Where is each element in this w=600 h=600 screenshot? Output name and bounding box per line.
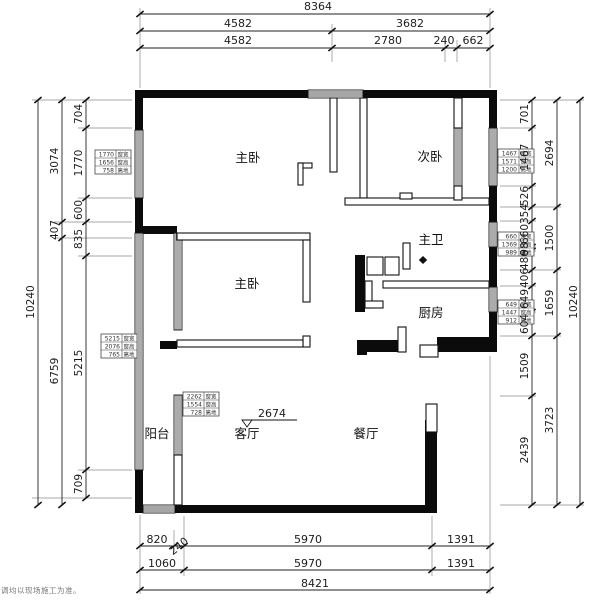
table-value: 2262 [187, 394, 202, 401]
wall-segment [160, 341, 177, 349]
annotation-value: 2674 [258, 407, 286, 420]
partition-or-door [365, 301, 383, 308]
dim-label-right-406: 406 [519, 268, 531, 288]
partition-or-door [174, 455, 182, 505]
table-value: 1770 [99, 152, 114, 159]
dim-label-left-5215: 5215 [73, 350, 85, 377]
partition-or-door [403, 243, 410, 269]
dim-label-right-486: 486 [519, 250, 531, 270]
wall-segment [135, 90, 308, 98]
window-icon [489, 128, 497, 186]
dim-label-right-1467: 1467 [519, 144, 531, 171]
table-label: 离地 [118, 167, 130, 175]
partition-or-door [398, 327, 406, 352]
dim-label-right-660: 660 [519, 224, 531, 244]
watermark-text: 调均以现场施工为准。 [1, 585, 81, 596]
window-icon [135, 130, 143, 198]
wall-segment [135, 505, 437, 513]
partition-or-door [400, 193, 412, 199]
dim-label-top-2780: 2780 [374, 34, 402, 47]
table-value: 728 [191, 410, 203, 417]
room-label: 客厅 [234, 426, 259, 441]
window-schedule-table: 1770窗宽1656窗高758离地 [95, 150, 131, 175]
wall-segment [437, 337, 497, 352]
dim-label-top-8364: 8364 [304, 0, 332, 13]
dim-label-right-3723: 3723 [544, 407, 556, 434]
dim-label-right-526: 526 [519, 186, 531, 206]
table-label: 窗宽 [124, 335, 136, 343]
table-label: 窗宽 [118, 151, 130, 159]
dim-label-bottom-5970: 5970 [294, 533, 322, 546]
partition-or-door [383, 281, 489, 288]
partition-or-door [426, 404, 437, 432]
partition-or-door [385, 257, 399, 275]
window-icon [454, 128, 462, 186]
wall-segment [489, 247, 497, 287]
room-label: 主卧 [234, 276, 259, 291]
dim-label-left-600: 600 [73, 200, 85, 220]
dim-label-left-10240: 10240 [25, 285, 37, 318]
room-label: 厨房 [418, 305, 443, 320]
dim-label-bottom-240: 240 [167, 535, 192, 558]
wall-segment [489, 186, 497, 222]
window-icon [143, 505, 175, 513]
dim-label-right-2694: 2694 [544, 139, 556, 166]
dim-label-bottom-1391: 1391 [447, 557, 475, 570]
wall-segment [363, 90, 497, 98]
table-value: 1656 [99, 160, 114, 167]
room-label: 餐厅 [353, 426, 378, 441]
table-label: 离地 [206, 409, 218, 417]
fixtures [419, 256, 427, 264]
dim-label-top-4582: 4582 [224, 34, 252, 47]
partition-or-door [345, 198, 489, 205]
dim-label-right-1659: 1659 [544, 290, 556, 317]
room-label: 主卧 [235, 150, 260, 165]
window-schedule-table: 2262窗宽1554窗高728离地 [183, 392, 219, 417]
dim-label-right-649: 649 [519, 289, 531, 309]
table-label: 离地 [124, 351, 136, 359]
table-label: 窗宽 [206, 393, 218, 401]
table-label: 窗高 [118, 159, 130, 167]
table-value: 989 [506, 250, 518, 257]
dim-label-left-704: 704 [73, 104, 85, 124]
partition-or-door [303, 336, 310, 347]
measure-annotation: 2674 [242, 407, 297, 427]
dim-label-top-4582: 4582 [224, 17, 252, 30]
floor-drain-icon [419, 256, 427, 264]
dim-label-top-240: 240 [434, 34, 455, 47]
table-value: 758 [103, 168, 115, 175]
wall-segment [135, 98, 143, 130]
partition-or-door [303, 240, 310, 302]
dim-label-left-709: 709 [73, 474, 85, 494]
window-icon [174, 395, 182, 455]
dim-label-top-3682: 3682 [396, 17, 424, 30]
partition-or-door [454, 186, 462, 200]
dim-label-bottom-1391: 1391 [447, 533, 475, 546]
dim-label-left-3074: 3074 [49, 147, 61, 174]
table-value: 1467 [502, 151, 517, 158]
dim-label-bottom-5970: 5970 [294, 557, 322, 570]
table-value: 765 [109, 352, 121, 359]
dim-label-bottom-8421: 8421 [301, 577, 329, 590]
dim-label-left-407: 407 [49, 220, 61, 240]
floorplan-drawing: 1770窗宽1656窗高758离地5215窗宽2076窗高765离地1467窗宽… [0, 0, 600, 600]
room-label: 阳台 [144, 426, 169, 441]
room-label: 次卧 [417, 149, 442, 164]
table-label: 窗高 [124, 343, 136, 351]
dim-label-right-604: 604 [519, 314, 531, 334]
window-icon [489, 222, 497, 247]
dim-label-right-1509: 1509 [519, 353, 531, 380]
dim-label-right-701: 701 [519, 104, 531, 124]
table-value: 649 [506, 302, 518, 309]
table-value: 1554 [187, 402, 202, 409]
table-value: 1200 [502, 167, 517, 174]
dim-label-right-1500: 1500 [544, 225, 556, 252]
window-icon [489, 287, 497, 312]
room-label: 主卫 [418, 232, 443, 247]
partition-or-door [360, 98, 367, 198]
partition-or-door [177, 340, 303, 347]
floorplan-page: 1770窗宽1656窗高758离地5215窗宽2076窗高765离地1467窗宽… [0, 0, 600, 600]
window-icon [308, 90, 363, 98]
partition-or-door [454, 98, 462, 128]
partition-or-door [177, 233, 310, 240]
partition-or-door [330, 98, 337, 172]
window-schedule-table: 5215窗宽2076窗高765离地 [101, 334, 137, 359]
exterior-interior-walls [135, 90, 497, 513]
dim-label-right-2439: 2439 [519, 437, 531, 464]
partition-or-door [367, 257, 383, 275]
dim-label-right-354: 354 [519, 204, 531, 224]
table-value: 1447 [502, 310, 517, 317]
table-value: 660 [506, 234, 518, 241]
dim-label-right-10240: 10240 [568, 285, 580, 318]
dim-label-left-1770: 1770 [73, 150, 85, 177]
window-icon [174, 233, 182, 330]
table-label: 窗高 [206, 401, 218, 409]
dim-label-top-662: 662 [463, 34, 484, 47]
dim-label-left-835: 835 [73, 229, 85, 249]
table-value: 1571 [502, 159, 517, 166]
wall-segment [355, 255, 365, 312]
dim-label-left-6759: 6759 [49, 358, 61, 385]
wall-segment [425, 420, 437, 513]
dim-label-bottom-1060: 1060 [148, 557, 176, 570]
partition-or-door [298, 163, 303, 185]
window-glyphs [135, 90, 497, 513]
dim-label-bottom-820: 820 [147, 533, 168, 546]
table-value: 912 [506, 318, 518, 325]
wall-segment [365, 340, 398, 352]
partition-or-door [420, 345, 438, 357]
table-value: 2076 [105, 344, 120, 351]
table-value: 1369 [502, 242, 517, 249]
table-value: 5215 [105, 336, 120, 343]
wall-segment [489, 98, 497, 128]
